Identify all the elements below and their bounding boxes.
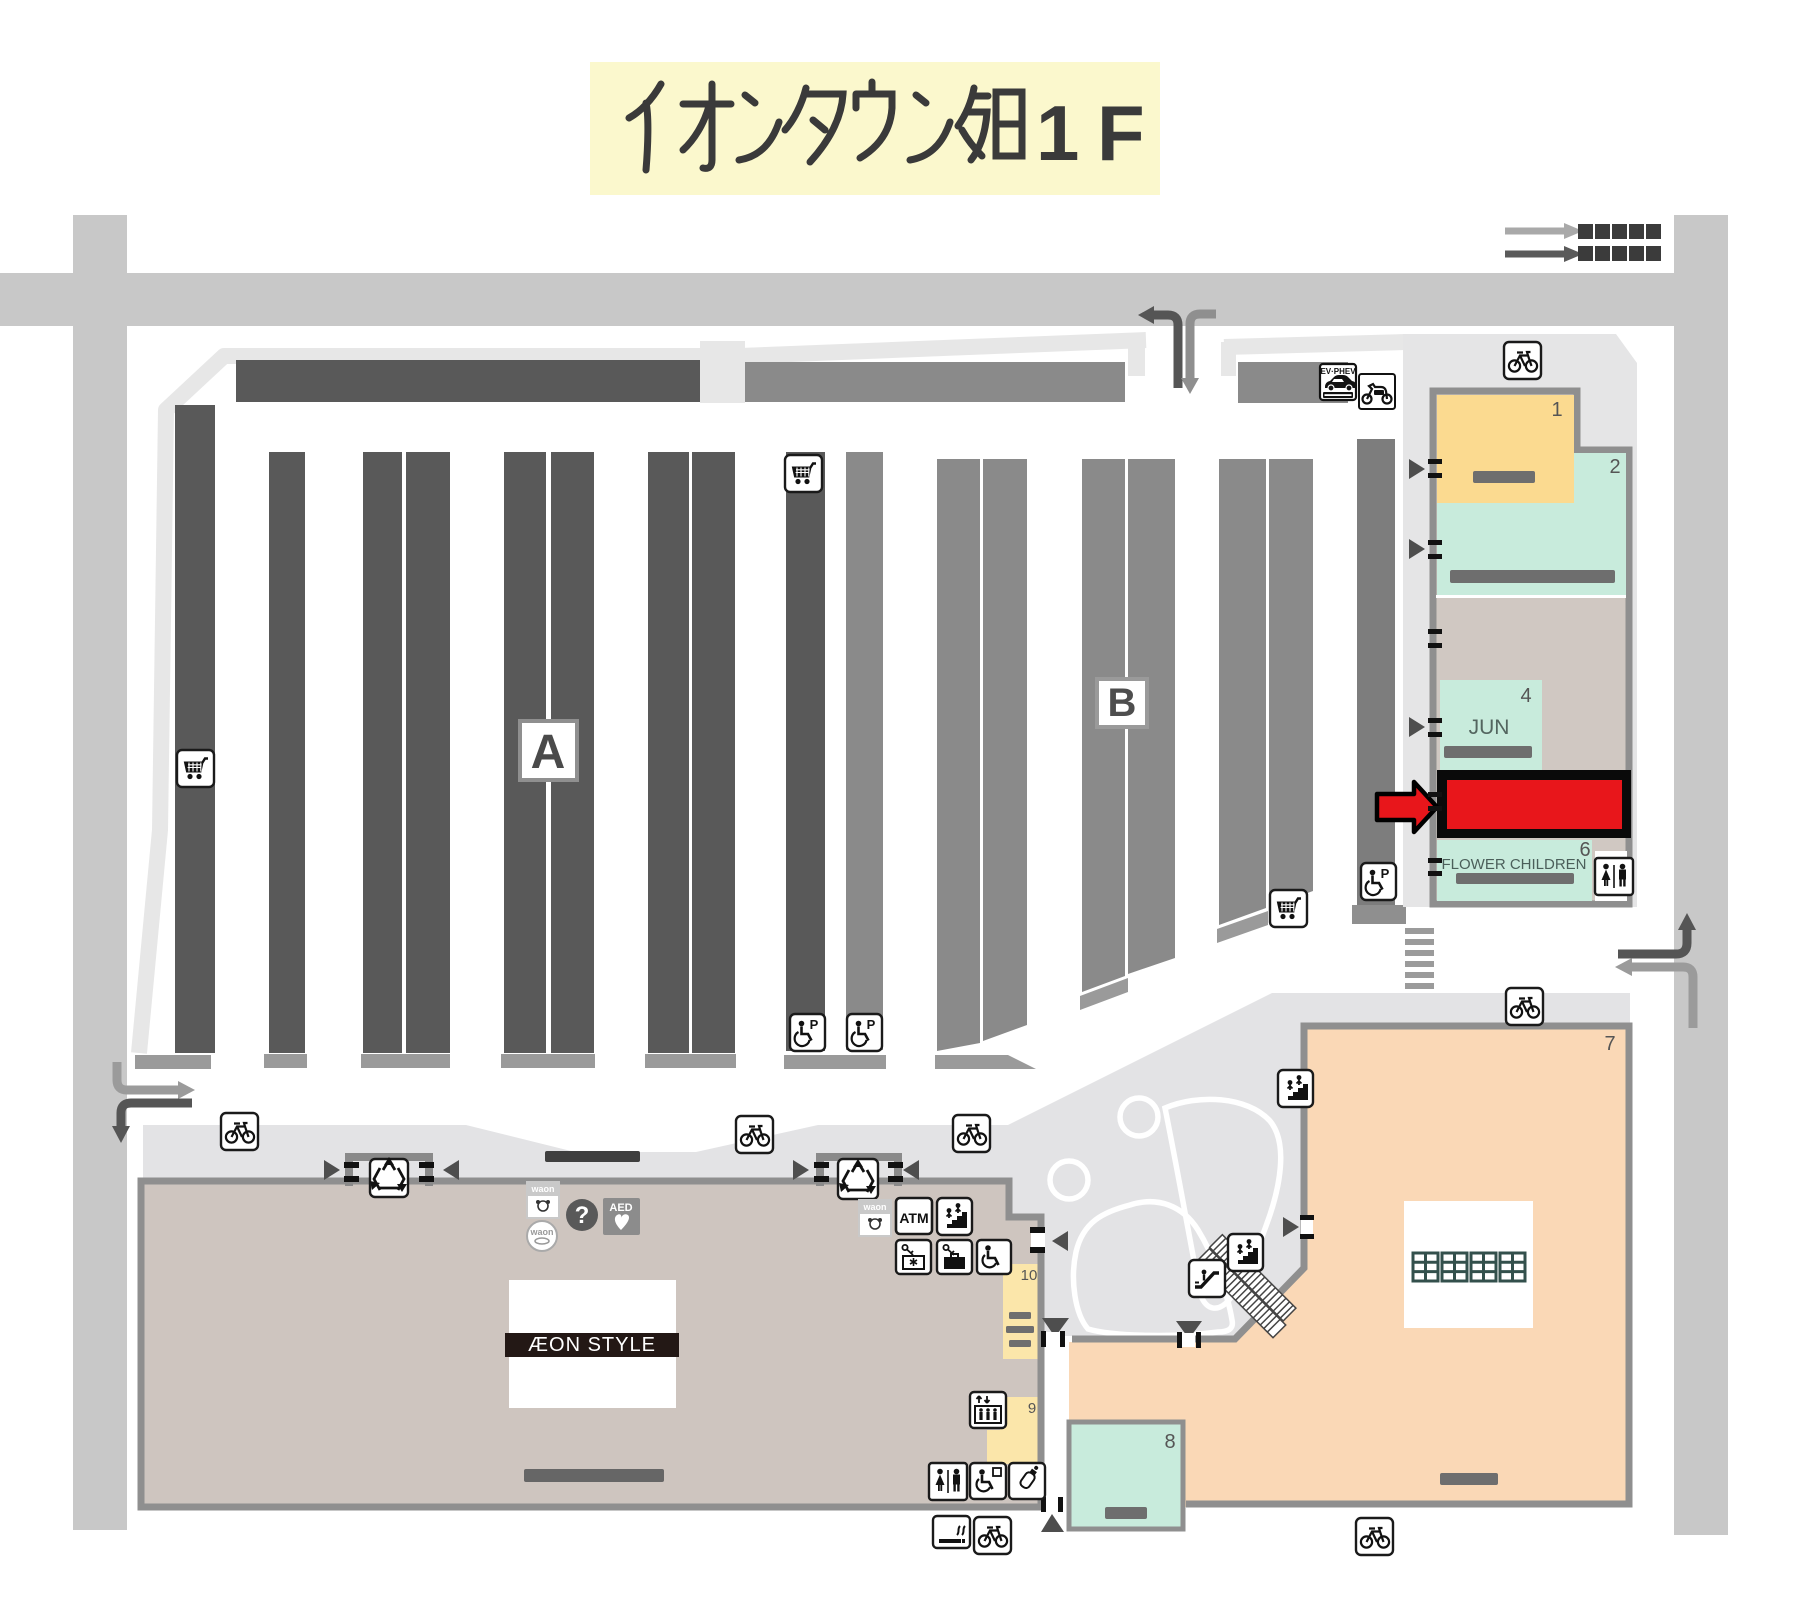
svg-text:JUN: JUN xyxy=(1469,716,1510,739)
svg-text:2: 2 xyxy=(1609,456,1620,478)
svg-text:9: 9 xyxy=(1028,1400,1036,1417)
svg-text:?: ? xyxy=(575,1202,590,1229)
svg-text:waon: waon xyxy=(862,1202,886,1212)
svg-text:ÆON STYLE: ÆON STYLE xyxy=(528,1334,656,1356)
svg-text:7: 7 xyxy=(1604,1033,1615,1055)
svg-text:1 F: 1 F xyxy=(1036,89,1143,177)
svg-text:10: 10 xyxy=(1021,1267,1038,1284)
svg-text:A: A xyxy=(531,726,566,779)
svg-text:EV·PHEV: EV·PHEV xyxy=(1320,367,1356,376)
svg-text:waon: waon xyxy=(529,1227,553,1237)
svg-text:FLOWER CHILDREN: FLOWER CHILDREN xyxy=(1441,856,1586,873)
svg-text:ATM: ATM xyxy=(899,1210,928,1226)
svg-text:waon: waon xyxy=(530,1184,554,1194)
svg-text:1: 1 xyxy=(1551,399,1562,421)
svg-text:4: 4 xyxy=(1520,685,1531,707)
svg-text:B: B xyxy=(1108,681,1137,725)
svg-text:8: 8 xyxy=(1164,1431,1175,1453)
svg-text:AED: AED xyxy=(609,1202,632,1214)
